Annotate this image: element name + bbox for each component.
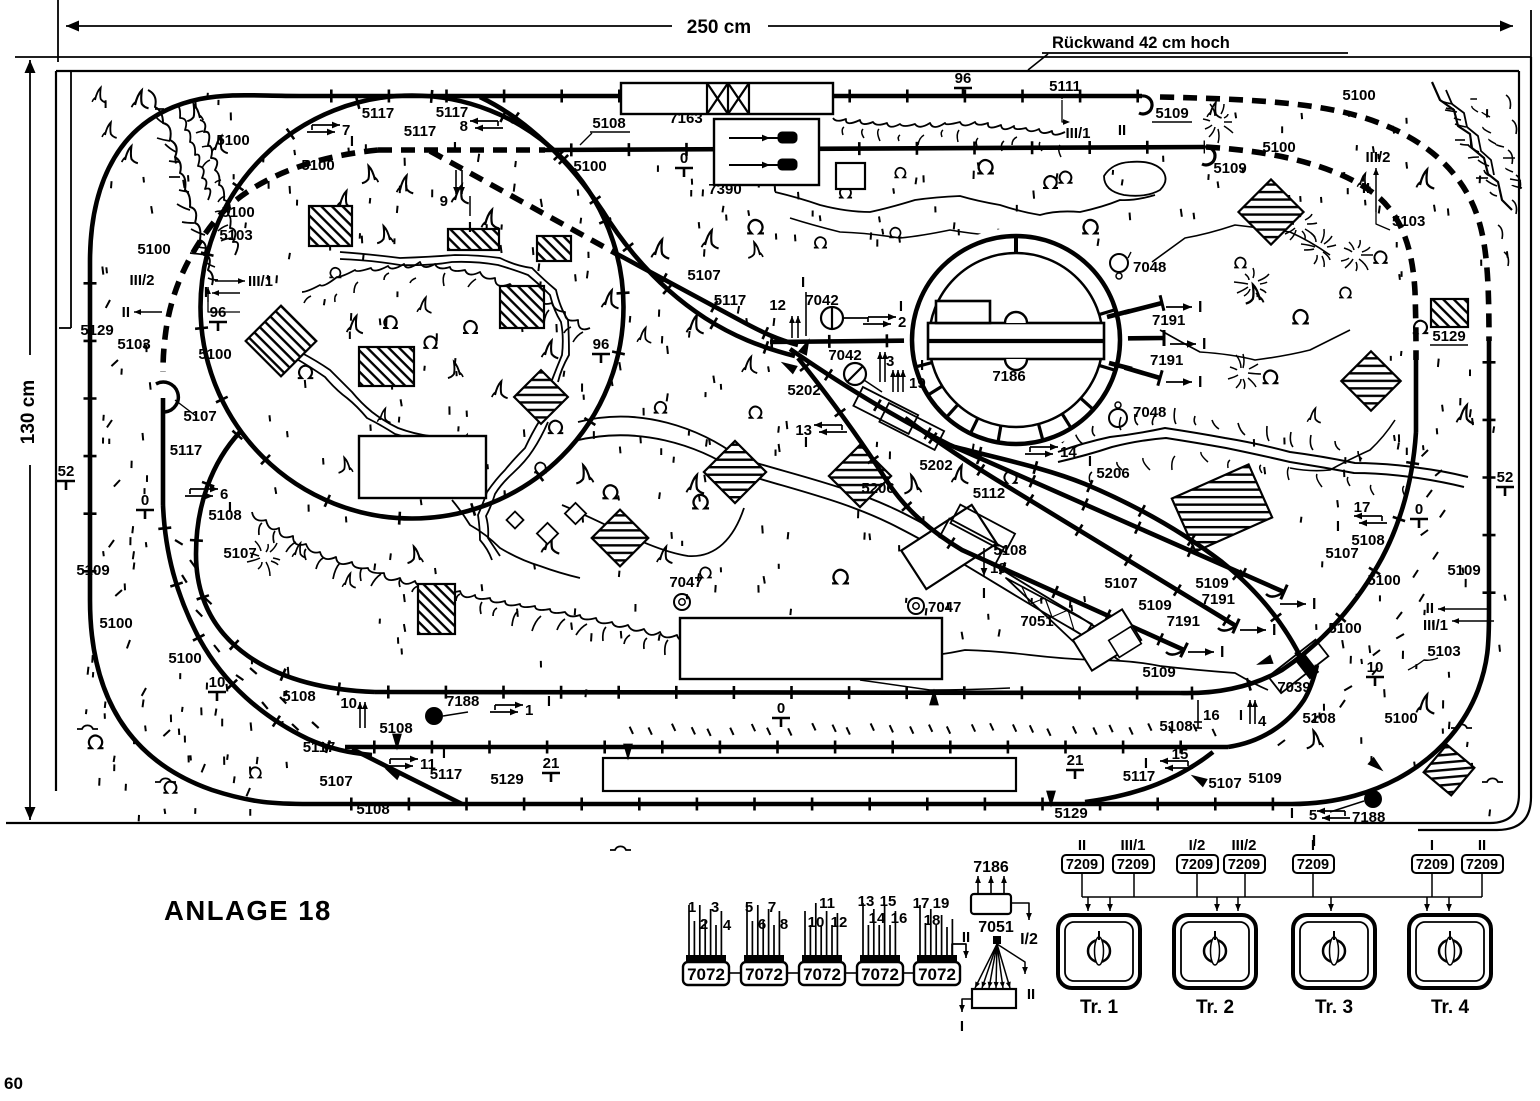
svg-text:7209: 7209 — [1181, 857, 1213, 873]
svg-text:15: 15 — [1172, 746, 1189, 763]
svg-text:5107: 5107 — [319, 773, 352, 790]
svg-text:5117: 5117 — [170, 442, 203, 459]
svg-text:7051: 7051 — [1020, 613, 1053, 630]
svg-text:7047: 7047 — [928, 599, 961, 616]
svg-text:II: II — [1118, 122, 1126, 139]
svg-text:7191: 7191 — [1150, 352, 1183, 369]
svg-text:I: I — [1198, 299, 1202, 316]
svg-text:II: II — [200, 284, 208, 301]
svg-text:3: 3 — [886, 353, 894, 370]
svg-text:4: 4 — [723, 917, 732, 934]
svg-text:2: 2 — [898, 314, 906, 331]
svg-text:14: 14 — [869, 910, 886, 927]
svg-text:5129: 5129 — [1432, 328, 1465, 345]
svg-text:1: 1 — [688, 899, 696, 916]
svg-text:I: I — [1220, 644, 1224, 661]
svg-text:5109: 5109 — [1248, 770, 1281, 787]
svg-text:II: II — [1027, 986, 1035, 1003]
svg-text:9: 9 — [440, 193, 448, 210]
svg-text:10: 10 — [808, 914, 825, 931]
svg-text:5107: 5107 — [223, 545, 256, 562]
svg-text:21: 21 — [1067, 752, 1084, 769]
svg-text:I: I — [804, 434, 808, 451]
svg-text:5100: 5100 — [1384, 710, 1417, 727]
svg-text:7188: 7188 — [1352, 809, 1385, 826]
svg-text:II: II — [1078, 837, 1086, 854]
svg-text:8: 8 — [780, 916, 788, 933]
svg-text:7072: 7072 — [861, 965, 899, 984]
svg-text:5108: 5108 — [1302, 710, 1335, 727]
svg-text:I: I — [1430, 837, 1434, 854]
svg-text:I: I — [547, 693, 551, 710]
svg-text:10: 10 — [1367, 659, 1384, 676]
svg-text:7047: 7047 — [669, 574, 702, 591]
svg-text:5109: 5109 — [1447, 562, 1480, 579]
svg-text:5109: 5109 — [1195, 575, 1228, 592]
svg-text:I: I — [982, 585, 986, 602]
svg-text:5107: 5107 — [1325, 545, 1358, 562]
svg-text:5117: 5117 — [362, 105, 395, 122]
svg-text:5107: 5107 — [1208, 775, 1241, 792]
svg-text:14: 14 — [1060, 444, 1077, 461]
svg-text:5: 5 — [1309, 807, 1317, 824]
svg-text:5100: 5100 — [573, 158, 606, 175]
svg-text:5202: 5202 — [919, 457, 952, 474]
svg-text:2: 2 — [700, 916, 708, 933]
svg-text:0: 0 — [777, 700, 785, 717]
svg-text:21: 21 — [543, 755, 560, 772]
svg-text:5107: 5107 — [687, 267, 720, 284]
svg-text:7072: 7072 — [745, 965, 783, 984]
svg-text:II: II — [1426, 600, 1434, 617]
svg-text:I: I — [1312, 833, 1316, 850]
svg-text:5117: 5117 — [303, 739, 336, 756]
svg-text:5117: 5117 — [430, 766, 463, 783]
svg-text:Tr. 4: Tr. 4 — [1431, 997, 1469, 1018]
svg-text:7188: 7188 — [446, 693, 479, 710]
svg-text:ANLAGE 18: ANLAGE 18 — [164, 895, 332, 926]
svg-text:7186: 7186 — [973, 859, 1009, 876]
svg-text:III/2: III/2 — [129, 272, 154, 289]
svg-text:III/2: III/2 — [1231, 837, 1256, 854]
svg-text:130 cm: 130 cm — [18, 380, 39, 444]
svg-text:5108: 5108 — [356, 801, 389, 818]
svg-text:5109: 5109 — [1213, 160, 1246, 177]
svg-text:13: 13 — [858, 893, 875, 910]
svg-text:III/1: III/1 — [1423, 617, 1448, 634]
svg-text:3: 3 — [711, 899, 719, 916]
svg-text:I/2: I/2 — [1020, 931, 1038, 948]
svg-text:I: I — [801, 274, 805, 291]
svg-text:7191: 7191 — [1152, 312, 1185, 329]
svg-text:5108: 5108 — [208, 507, 241, 524]
svg-text:5103: 5103 — [1427, 643, 1460, 660]
svg-text:5100: 5100 — [221, 204, 254, 221]
svg-text:5100: 5100 — [301, 157, 334, 174]
svg-text:I: I — [1290, 805, 1294, 822]
svg-text:5112: 5112 — [973, 485, 1006, 502]
svg-text:II: II — [962, 929, 970, 946]
svg-text:I: I — [453, 139, 457, 156]
svg-text:I: I — [1239, 707, 1243, 724]
svg-text:0: 0 — [1415, 501, 1423, 518]
svg-text:5108: 5108 — [379, 720, 412, 737]
svg-text:5109: 5109 — [1138, 597, 1171, 614]
svg-text:I: I — [1336, 518, 1340, 535]
svg-text:11: 11 — [819, 895, 835, 912]
svg-text:17: 17 — [913, 895, 930, 912]
svg-text:I: I — [899, 298, 903, 315]
svg-text:5103: 5103 — [117, 336, 150, 353]
svg-text:I: I — [1312, 596, 1316, 613]
svg-text:7209: 7209 — [1466, 857, 1498, 873]
svg-text:5100: 5100 — [1367, 572, 1400, 589]
svg-text:I: I — [350, 133, 354, 150]
svg-text:Tr. 1: Tr. 1 — [1080, 997, 1118, 1018]
svg-text:7209: 7209 — [1066, 857, 1098, 873]
svg-text:5108: 5108 — [1159, 718, 1192, 735]
svg-text:5100: 5100 — [1328, 620, 1361, 637]
svg-text:7191: 7191 — [1167, 613, 1200, 630]
svg-text:7051: 7051 — [978, 919, 1014, 936]
svg-text:I: I — [1202, 336, 1206, 353]
svg-text:10: 10 — [209, 674, 226, 691]
svg-text:7048: 7048 — [1133, 259, 1166, 276]
svg-text:16: 16 — [1203, 707, 1220, 724]
svg-text:5103: 5103 — [219, 227, 252, 244]
svg-text:52: 52 — [1497, 469, 1514, 486]
svg-text:10: 10 — [340, 695, 357, 712]
svg-text:Rückwand 42 cm hoch: Rückwand 42 cm hoch — [1052, 34, 1230, 52]
svg-text:7042: 7042 — [805, 292, 838, 309]
svg-text:7072: 7072 — [803, 965, 841, 984]
svg-text:5108: 5108 — [282, 688, 315, 705]
svg-text:I: I — [1088, 453, 1092, 470]
svg-text:I/2: I/2 — [1189, 837, 1206, 854]
svg-text:7039: 7039 — [1277, 679, 1310, 696]
svg-text:Tr. 2: Tr. 2 — [1196, 997, 1234, 1018]
svg-text:12: 12 — [831, 914, 848, 931]
svg-text:5202: 5202 — [787, 382, 820, 399]
svg-text:5117: 5117 — [1123, 768, 1156, 785]
svg-text:7209: 7209 — [1416, 857, 1448, 873]
svg-text:III/1: III/1 — [248, 273, 273, 290]
svg-text:52: 52 — [58, 463, 75, 480]
svg-text:15: 15 — [880, 893, 897, 910]
svg-text:96: 96 — [593, 336, 610, 353]
svg-text:5117: 5117 — [436, 104, 469, 121]
svg-text:5109: 5109 — [1142, 664, 1175, 681]
svg-text:5111: 5111 — [1049, 78, 1081, 95]
svg-text:19: 19 — [909, 375, 926, 392]
svg-text:7186: 7186 — [992, 368, 1025, 385]
svg-text:5107: 5107 — [1104, 575, 1137, 592]
svg-text:1: 1 — [525, 702, 533, 719]
svg-text:5100: 5100 — [1262, 139, 1295, 156]
svg-text:96: 96 — [955, 70, 972, 87]
svg-text:III/1: III/1 — [1120, 837, 1145, 854]
svg-text:5109: 5109 — [76, 562, 109, 579]
svg-text:250 cm: 250 cm — [687, 17, 751, 38]
svg-text:5100: 5100 — [1342, 87, 1375, 104]
svg-text:60: 60 — [4, 1074, 23, 1093]
svg-text:7042: 7042 — [828, 347, 861, 364]
svg-text:18: 18 — [924, 912, 941, 929]
svg-text:17: 17 — [1354, 499, 1371, 516]
svg-text:5100: 5100 — [137, 241, 170, 258]
svg-text:4: 4 — [1258, 713, 1267, 730]
svg-text:6: 6 — [758, 916, 766, 933]
svg-text:II: II — [122, 304, 130, 321]
svg-text:7048: 7048 — [1133, 404, 1166, 421]
svg-text:5: 5 — [745, 899, 753, 916]
svg-text:5206: 5206 — [1096, 465, 1129, 482]
svg-text:12: 12 — [769, 297, 786, 314]
svg-text:19: 19 — [933, 895, 950, 912]
svg-text:0: 0 — [680, 150, 688, 167]
svg-text:0: 0 — [141, 492, 149, 509]
svg-text:7072: 7072 — [687, 965, 725, 984]
svg-text:I: I — [1272, 622, 1276, 639]
svg-text:II: II — [1362, 180, 1370, 197]
svg-text:5109: 5109 — [1155, 105, 1188, 122]
svg-text:5117: 5117 — [404, 123, 437, 140]
svg-text:5100: 5100 — [198, 346, 231, 363]
svg-text:16: 16 — [891, 910, 908, 927]
svg-text:Tr. 3: Tr. 3 — [1315, 997, 1353, 1018]
svg-text:II: II — [1478, 837, 1486, 854]
svg-text:5129: 5129 — [490, 771, 523, 788]
svg-text:7: 7 — [768, 899, 776, 916]
svg-text:I: I — [468, 219, 472, 236]
svg-text:5100: 5100 — [168, 650, 201, 667]
svg-text:5129: 5129 — [80, 322, 113, 339]
svg-text:5103: 5103 — [1392, 213, 1425, 230]
svg-text:I: I — [960, 1018, 964, 1035]
svg-text:7209: 7209 — [1297, 857, 1329, 873]
svg-text:I: I — [920, 357, 924, 374]
svg-text:18: 18 — [990, 560, 1007, 577]
svg-text:III/1: III/1 — [1065, 125, 1090, 142]
svg-text:5129: 5129 — [1054, 805, 1087, 822]
svg-text:5100: 5100 — [216, 132, 249, 149]
svg-text:7209: 7209 — [1117, 857, 1149, 873]
svg-text:5108: 5108 — [592, 115, 625, 132]
svg-text:7072: 7072 — [918, 965, 956, 984]
svg-text:7191: 7191 — [1202, 591, 1235, 608]
svg-text:I: I — [442, 745, 446, 762]
svg-text:7209: 7209 — [1228, 857, 1260, 873]
svg-text:III/2: III/2 — [1365, 149, 1390, 166]
svg-text:I: I — [1198, 374, 1202, 391]
svg-text:5206: 5206 — [861, 480, 894, 497]
svg-text:5100: 5100 — [99, 615, 132, 632]
svg-text:5117: 5117 — [714, 292, 747, 309]
